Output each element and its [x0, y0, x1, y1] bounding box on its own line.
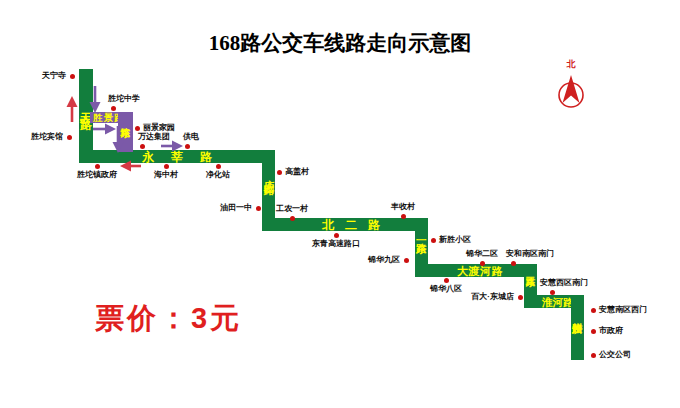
stop-label: 新胜小区 — [439, 236, 471, 245]
road-bar-jiaozhou: 胶州路 — [571, 295, 584, 360]
direction-right-arrow-icon — [160, 140, 183, 152]
stop-label: 锦华八区 — [430, 285, 462, 294]
stop-label: 丰收村 — [391, 203, 415, 212]
stop-dot — [111, 106, 116, 111]
stop-label: 净化站 — [206, 171, 230, 180]
stop-dot — [404, 258, 409, 263]
stop-label: 市政府 — [599, 327, 623, 336]
stop-dot — [511, 261, 516, 266]
stop-label: 工农一村 — [276, 205, 308, 214]
stop-label: 供电 — [183, 133, 199, 142]
stop-dot — [401, 214, 406, 219]
stop-dot — [67, 135, 72, 140]
stop-dot — [95, 164, 100, 169]
road-label-huaihe: 淮河路 — [542, 296, 574, 307]
stop-label: 丽景家园 — [143, 124, 175, 133]
stop-label: 锦华二区 — [466, 250, 498, 259]
road-label-beier: 北二路 — [322, 219, 391, 231]
bus-route-map: 168路公交车线路走向示意图 天宁路 永莘路 庐山路 北二路 东一路 大渡河路 … — [0, 0, 680, 408]
stop-label: 海中村 — [154, 171, 178, 180]
compass-north-label: 北 — [552, 60, 590, 69]
road-label-yongxin: 永莘路 — [142, 151, 229, 163]
stop-dot — [591, 353, 596, 358]
road-label-jiaozhou: 胶州路 — [572, 314, 583, 316]
road-label-dongyi: 东一路 — [416, 234, 427, 236]
stop-dot — [591, 308, 596, 313]
stop-dot — [480, 261, 485, 266]
stop-label: 百大·东城店 — [471, 293, 514, 302]
road-label-daduhe: 大渡河路 — [457, 265, 503, 276]
stop-dot — [550, 290, 555, 295]
fare-label: 票价：3元 — [95, 299, 242, 339]
stop-label: 锦华九区 — [368, 256, 400, 265]
road-bar-daduhe: 大渡河路 — [415, 264, 537, 277]
stop-label: 安慧南区西门 — [599, 306, 647, 315]
stop-dot — [518, 295, 523, 300]
direction-left-arrow-icon — [120, 160, 142, 172]
stop-label: 天宁寺 — [42, 72, 66, 81]
stop-label: 万达集团 — [138, 133, 170, 142]
stop-dot — [140, 144, 145, 149]
stop-label: 安和南区南门 — [506, 250, 554, 259]
stop-label: 高盖村 — [285, 168, 309, 177]
stop-label: 公交公司 — [599, 351, 631, 360]
page-title: 168路公交车线路走向示意图 — [0, 29, 680, 57]
stop-dot — [256, 206, 261, 211]
stop-dot — [135, 126, 140, 131]
stop-dot — [334, 233, 339, 238]
stop-dot — [70, 74, 75, 79]
road-label-lushan: 庐山路 — [263, 171, 274, 177]
stop-dot — [290, 216, 295, 221]
stop-label: 胜坨镇政府 — [77, 171, 117, 180]
stop-label: 胜坨中学 — [108, 95, 140, 104]
stop-dot — [444, 278, 449, 283]
stop-dot — [431, 238, 436, 243]
stop-dot — [185, 144, 190, 149]
stop-dot — [591, 329, 596, 334]
stop-label: 油田一中 — [220, 204, 252, 213]
direction-down-arrow-icon — [112, 125, 124, 153]
stop-label: 东青高速路口 — [312, 240, 360, 249]
direction-up-arrow-icon — [66, 96, 78, 123]
stop-dot — [277, 170, 282, 175]
compass-needle-icon — [556, 69, 586, 109]
road-bar-beier: 北二路 — [262, 218, 428, 231]
stop-dot — [216, 164, 221, 169]
direction-down-arrow-icon — [89, 85, 101, 113]
stop-dot — [164, 164, 169, 169]
stop-label: 胜坨宾馆 — [31, 133, 63, 142]
compass: 北 — [552, 60, 590, 113]
stop-label: 安慧西区南门 — [540, 279, 588, 288]
